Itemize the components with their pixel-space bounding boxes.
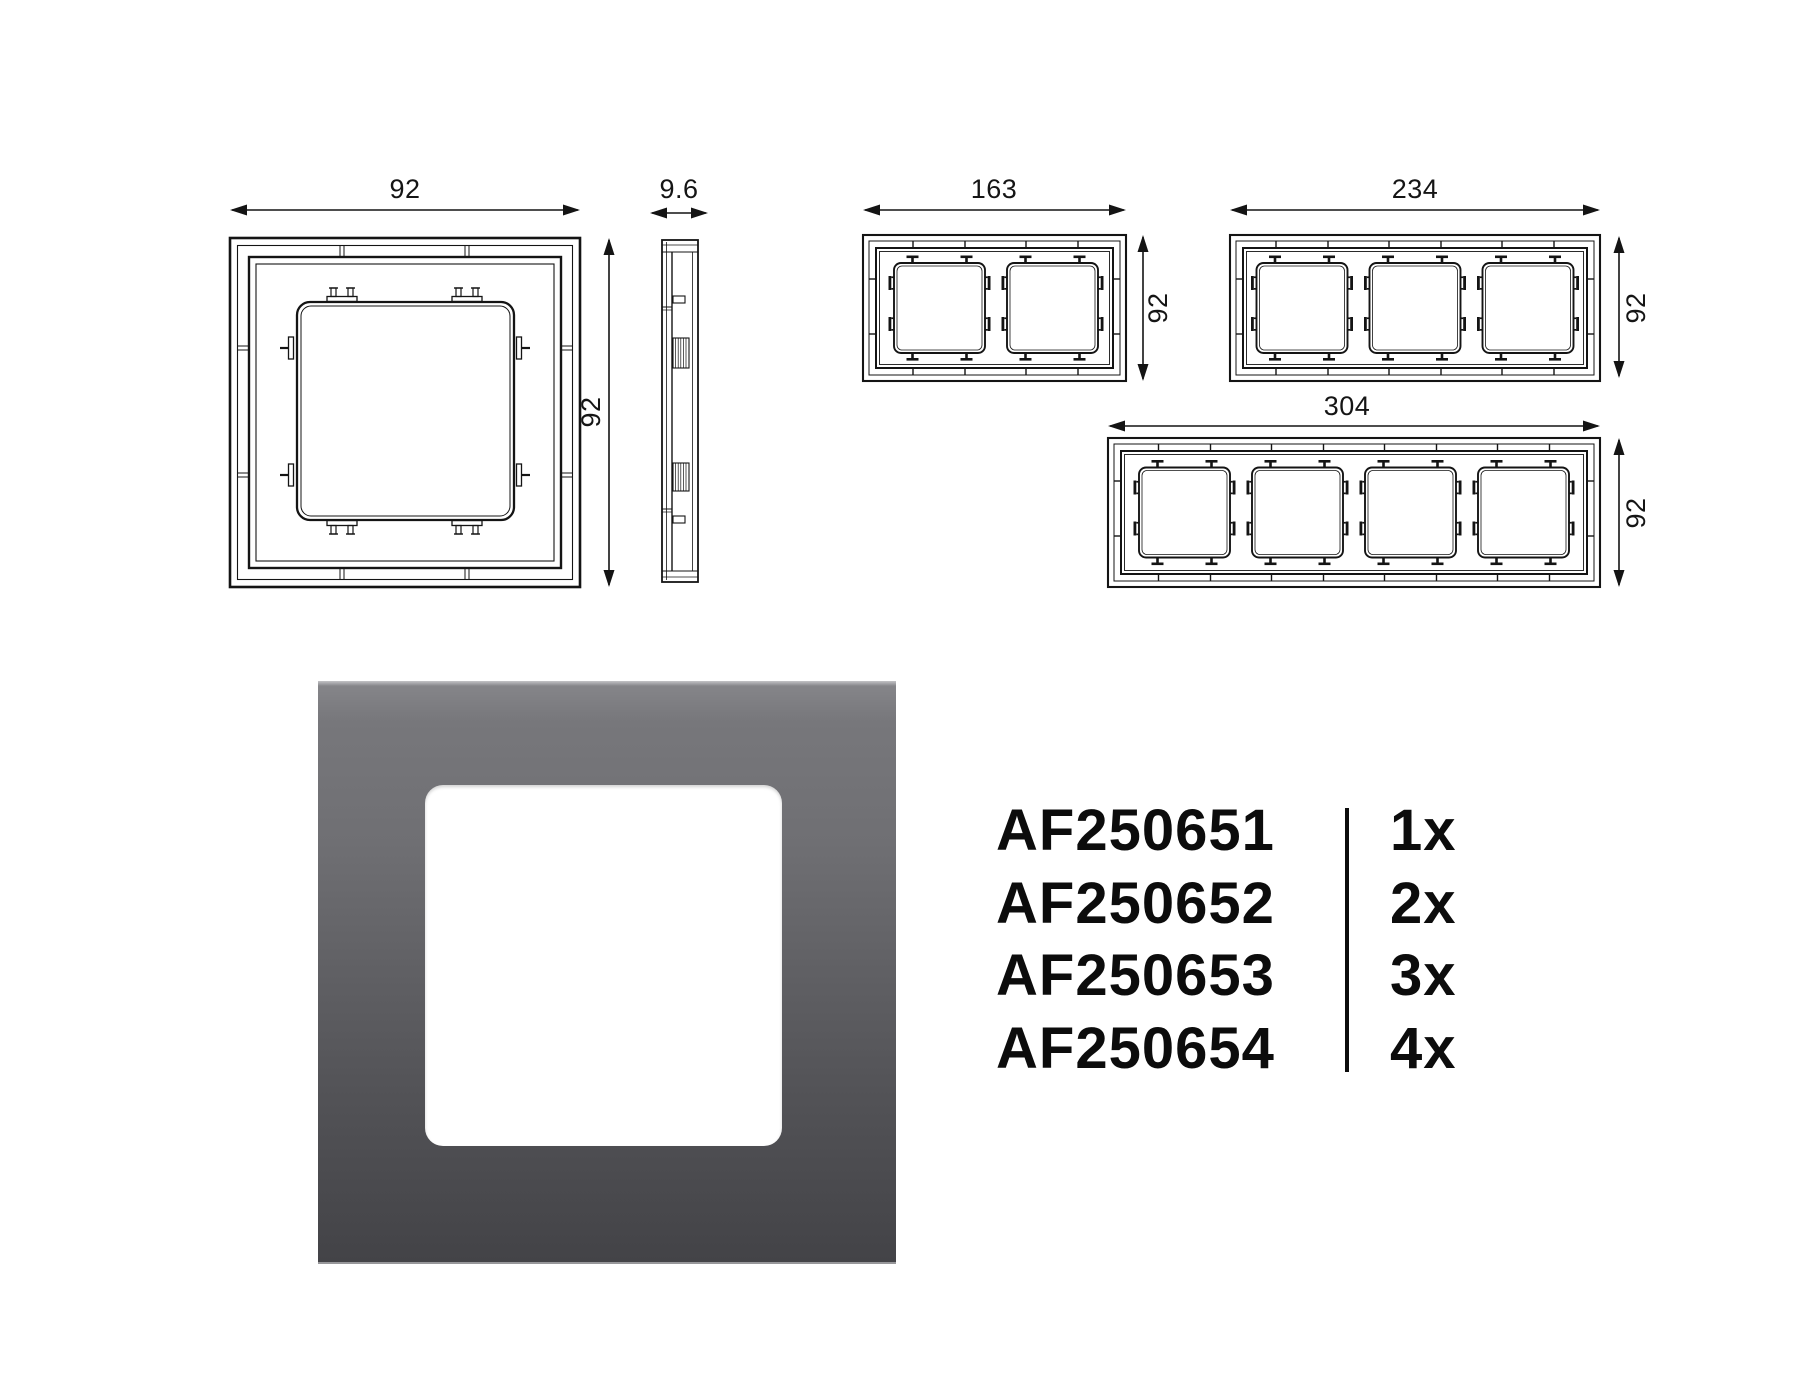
- product-photo: [318, 681, 896, 1264]
- table-divider: [1345, 808, 1349, 1072]
- three-gang-front-view: [1230, 235, 1600, 381]
- product-code: AF250653: [996, 940, 1275, 1013]
- single-width-dimension: [230, 205, 580, 216]
- dim-label-depth: 9.6: [629, 172, 729, 206]
- dim-label-single-width: 92: [355, 172, 455, 206]
- dim-label-four-gang-width: 304: [1297, 389, 1397, 423]
- product-code: AF250652: [996, 868, 1275, 941]
- dim-label-three-gang-width: 234: [1365, 172, 1465, 206]
- dim-label-two-gang-width: 163: [944, 172, 1044, 206]
- dim-label-four-gang-height: 92: [1619, 463, 1653, 563]
- three-gang-width-dimension: [1230, 205, 1600, 216]
- frame-window: [425, 785, 782, 1146]
- product-qty: 1x: [1390, 795, 1457, 868]
- dimension-drawings: [0, 0, 1800, 1400]
- technical-drawing-sheet: 92 9.6 163 234 304 92 92 92 92 AF250651 …: [0, 0, 1800, 1400]
- two-gang-width-dimension: [863, 205, 1126, 216]
- two-gang-front-view: [863, 235, 1126, 381]
- product-code-column: AF250651 AF250652 AF250653 AF250654: [996, 795, 1275, 1085]
- product-code: AF250654: [996, 1013, 1275, 1086]
- single-frame-side-view: [662, 240, 698, 582]
- product-code: AF250651: [996, 795, 1275, 868]
- product-qty: 2x: [1390, 868, 1457, 941]
- four-gang-front-view: [1108, 438, 1600, 587]
- dim-label-single-height: 92: [574, 362, 608, 462]
- product-qty-column: 1x 2x 3x 4x: [1390, 795, 1457, 1085]
- product-qty: 4x: [1390, 1013, 1457, 1086]
- depth-dimension: [650, 208, 708, 219]
- product-qty: 3x: [1390, 940, 1457, 1013]
- single-frame-front-view: [230, 238, 580, 587]
- dim-label-two-gang-height: 92: [1141, 258, 1175, 358]
- dim-label-three-gang-height: 92: [1619, 258, 1653, 358]
